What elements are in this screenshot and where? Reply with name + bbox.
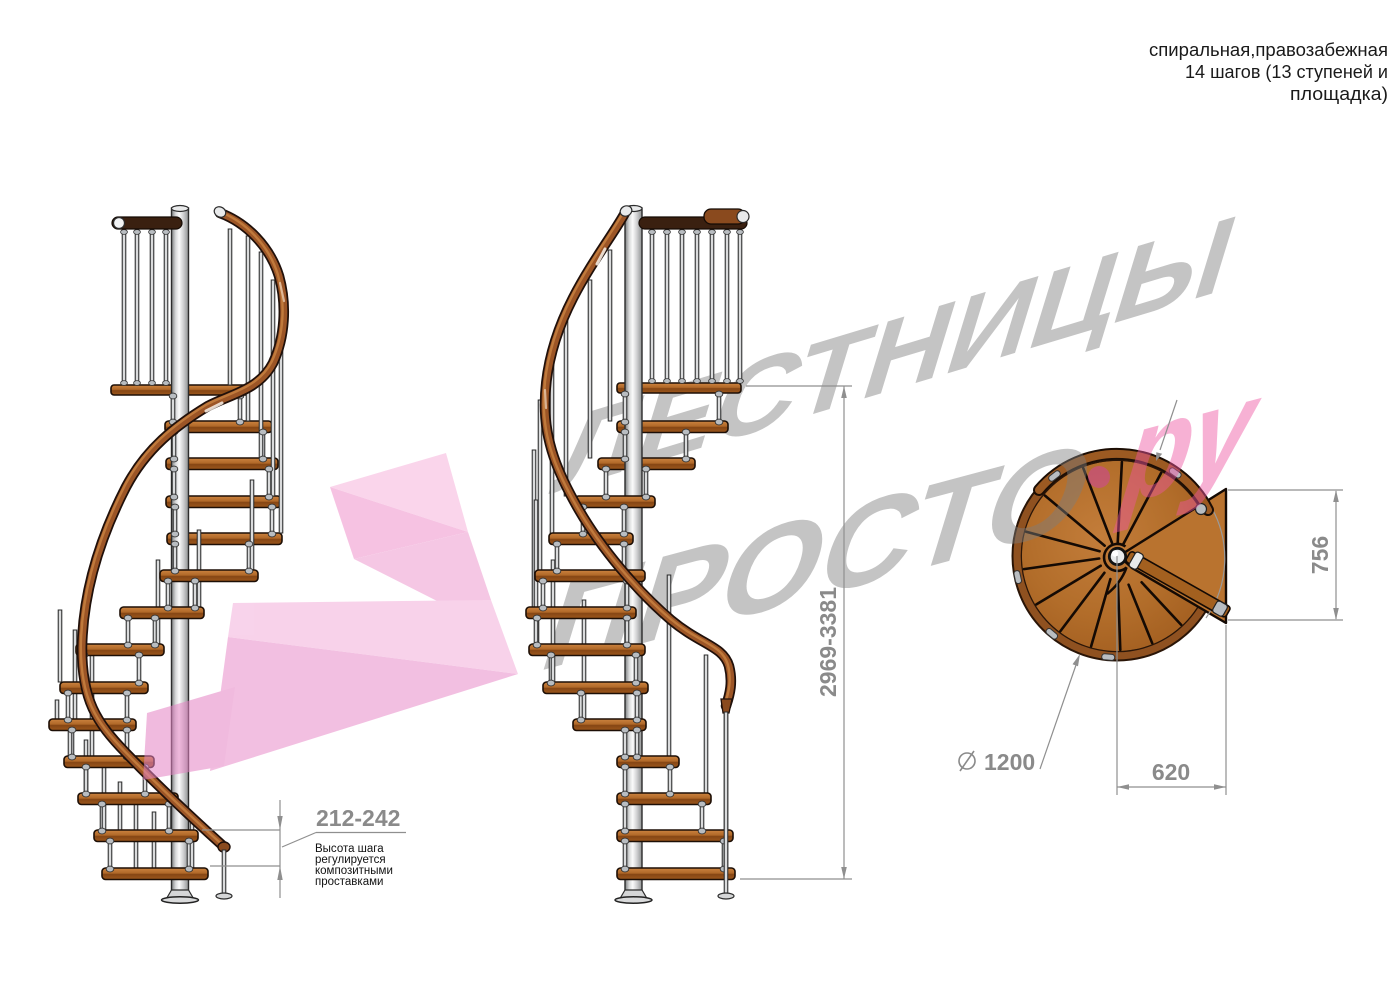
svg-text:1200: 1200 [984, 749, 1035, 775]
svg-text:212-242: 212-242 [316, 805, 400, 831]
svg-text:756: 756 [1307, 536, 1333, 574]
svg-text:спиральная,правозабежная: спиральная,правозабежная [1149, 40, 1388, 60]
svg-text:2969-3381: 2969-3381 [815, 587, 841, 697]
svg-text:620: 620 [1152, 759, 1190, 785]
svg-text:площадка): площадка) [1290, 84, 1388, 104]
svg-text:проставками: проставками [315, 876, 383, 888]
svg-text:14 шагов (13 ступеней и: 14 шагов (13 ступеней и [1185, 62, 1388, 82]
